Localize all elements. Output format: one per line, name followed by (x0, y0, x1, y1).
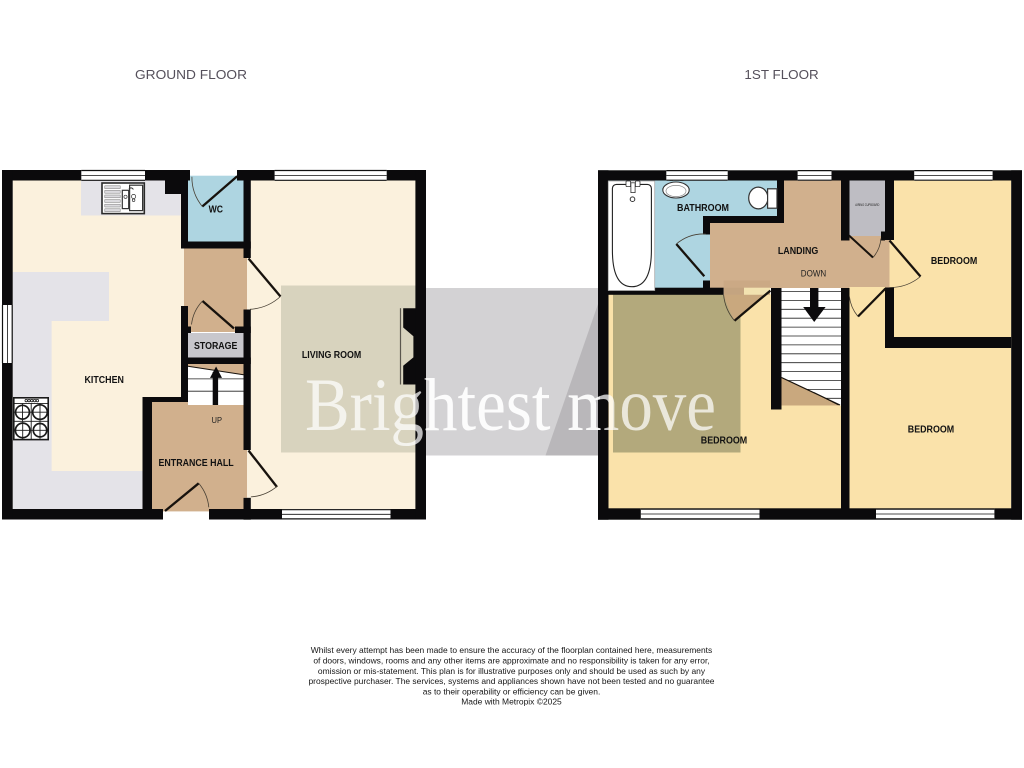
svg-text:Whilst every attempt has been: Whilst every attempt has been made to en… (311, 645, 712, 655)
svg-text:LIVING ROOM: LIVING ROOM (302, 350, 361, 361)
svg-text:LANDING: LANDING (778, 246, 819, 257)
svg-text:GROUND FLOOR: GROUND FLOOR (135, 67, 247, 82)
svg-text:AIRING CUPBOARD: AIRING CUPBOARD (855, 203, 879, 207)
svg-text:1ST FLOOR: 1ST FLOOR (744, 67, 818, 82)
svg-text:Made with Metropix ©2025: Made with Metropix ©2025 (461, 697, 562, 707)
svg-text:prospective purchaser. The ser: prospective purchaser. The services, sys… (308, 676, 714, 686)
svg-text:DOWN: DOWN (801, 268, 826, 278)
svg-text:ENTRANCE HALL: ENTRANCE HALL (159, 458, 234, 469)
svg-text:omission or mis-statement. Thi: omission or mis-statement. This plan is … (318, 666, 706, 676)
svg-text:KITCHEN: KITCHEN (84, 375, 123, 386)
svg-text:BEDROOM: BEDROOM (931, 256, 977, 267)
svg-text:of doors, windows, rooms and a: of doors, windows, rooms and any other i… (313, 656, 709, 666)
svg-text:UP: UP (212, 415, 223, 425)
svg-text:as to their operability or eff: as to their operability or efficiency ca… (423, 686, 601, 696)
svg-text:STORAGE: STORAGE (194, 341, 238, 352)
svg-text:BEDROOM: BEDROOM (908, 424, 954, 435)
svg-text:WC: WC (209, 205, 223, 216)
svg-text:BATHROOM: BATHROOM (677, 203, 729, 214)
